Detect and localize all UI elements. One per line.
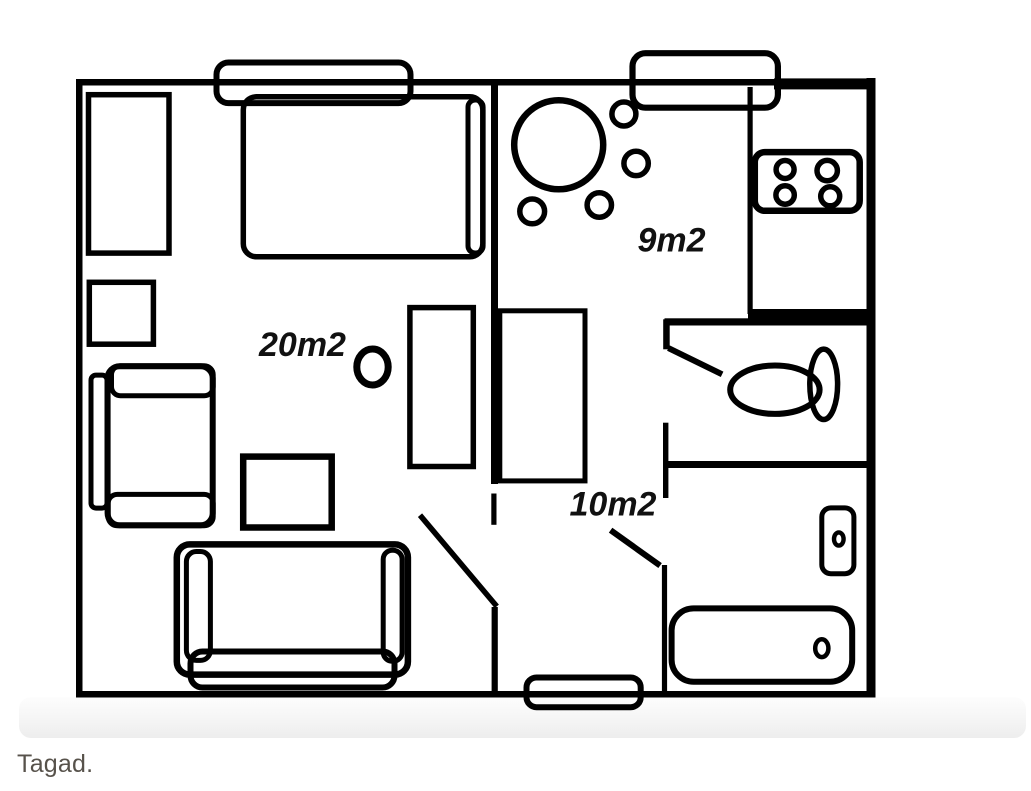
svg-text:10m2: 10m2 bbox=[570, 486, 657, 524]
svg-text:9m2: 9m2 bbox=[638, 222, 706, 260]
svg-text:20m2: 20m2 bbox=[258, 326, 346, 364]
